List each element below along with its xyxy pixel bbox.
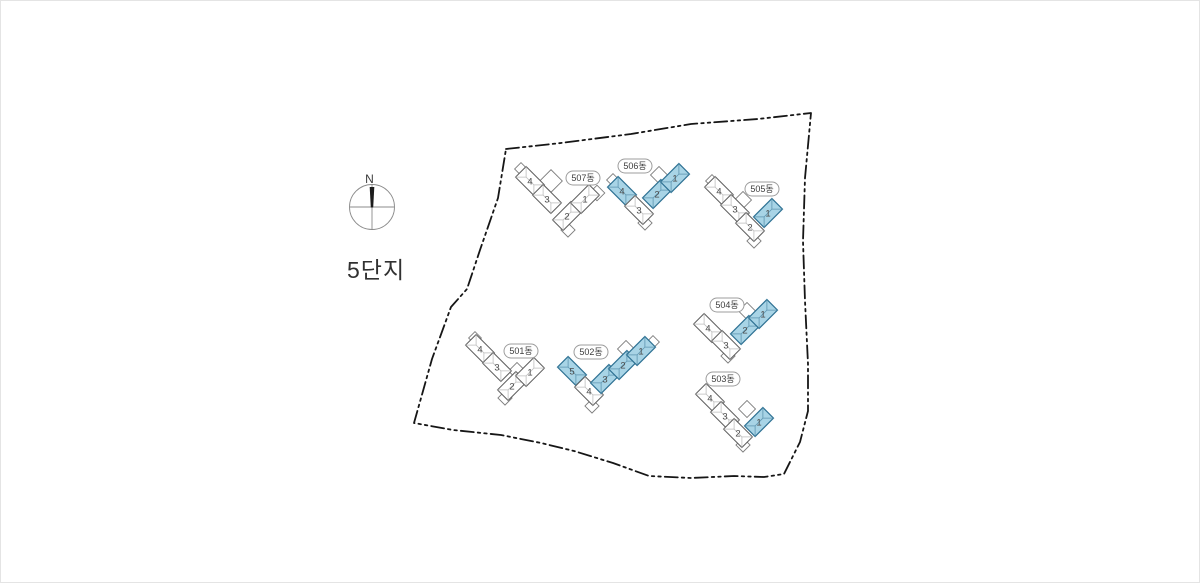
- unit-number-506-2: 2: [654, 189, 659, 200]
- unit-number-506-3: 3: [636, 205, 641, 216]
- unit-number-505-1: 1: [765, 208, 770, 219]
- svg-text:505동: 505동: [750, 184, 773, 194]
- unit-number-506-4: 4: [619, 186, 624, 197]
- svg-text:502동: 502동: [579, 347, 602, 357]
- unit-number-501-3: 3: [494, 362, 499, 373]
- unit-number-507-1: 1: [582, 194, 587, 205]
- compass-needle-icon: [370, 187, 375, 208]
- building-label-505[interactable]: 505동: [745, 182, 779, 196]
- unit-number-502-4: 4: [586, 386, 591, 397]
- unit-number-503-1: 1: [756, 417, 761, 428]
- svg-text:503동: 503동: [711, 374, 734, 384]
- building-label-507[interactable]: 507동: [566, 171, 600, 185]
- building-507: 4321507동: [515, 163, 605, 237]
- building-506: 4321506동: [607, 159, 690, 230]
- building-504: 4321504동: [694, 298, 778, 363]
- unit-number-501-1: 1: [527, 367, 532, 378]
- svg-text:504동: 504동: [715, 300, 738, 310]
- building-label-504[interactable]: 504동: [710, 298, 744, 312]
- compass-icon: N: [350, 172, 395, 230]
- svg-text:507동: 507동: [571, 173, 594, 183]
- unit-number-506-1: 1: [672, 173, 677, 184]
- unit-number-505-3: 3: [732, 204, 737, 215]
- unit-number-505-4: 4: [716, 186, 721, 197]
- unit-number-504-3: 3: [723, 340, 728, 351]
- building-label-506[interactable]: 506동: [618, 159, 652, 173]
- unit-number-504-1: 1: [760, 309, 765, 320]
- building-502: 54321502동: [558, 336, 660, 413]
- unit-number-502-3: 3: [602, 374, 607, 385]
- building-505: 4321505동: [705, 175, 783, 248]
- unit-number-501-4: 4: [477, 344, 482, 355]
- compass-north-label: N: [365, 172, 374, 186]
- building-label-502[interactable]: 502동: [574, 345, 608, 359]
- unit-number-503-4: 4: [707, 393, 712, 404]
- site-plan-canvas: N 4321501동54321502동4321503동4321504동43215…: [0, 0, 1200, 583]
- svg-text:506동: 506동: [623, 161, 646, 171]
- unit-number-507-2: 2: [564, 211, 569, 222]
- unit-number-502-5: 5: [569, 366, 574, 377]
- unit-number-504-4: 4: [705, 323, 710, 334]
- buildings-layer: 4321501동54321502동4321503동4321504동4321505…: [466, 159, 783, 452]
- unit-number-501-2: 2: [509, 381, 514, 392]
- svg-text:501동: 501동: [509, 346, 532, 356]
- unit-number-507-3: 3: [544, 194, 549, 205]
- building-label-503[interactable]: 503동: [706, 372, 740, 386]
- stair-core: [739, 401, 756, 418]
- unit-number-507-4: 4: [527, 176, 532, 187]
- building-501: 4321501동: [466, 332, 545, 405]
- unit-number-502-2: 2: [620, 360, 625, 371]
- unit-number-504-2: 2: [742, 325, 747, 336]
- unit-number-503-2: 2: [735, 428, 740, 439]
- unit-number-505-2: 2: [747, 222, 752, 233]
- unit-number-502-1: 1: [638, 346, 643, 357]
- building-label-501[interactable]: 501동: [504, 344, 538, 358]
- unit-number-503-3: 3: [722, 411, 727, 422]
- building-503: 4321503동: [696, 372, 774, 452]
- complex-title: 5단지: [347, 251, 405, 285]
